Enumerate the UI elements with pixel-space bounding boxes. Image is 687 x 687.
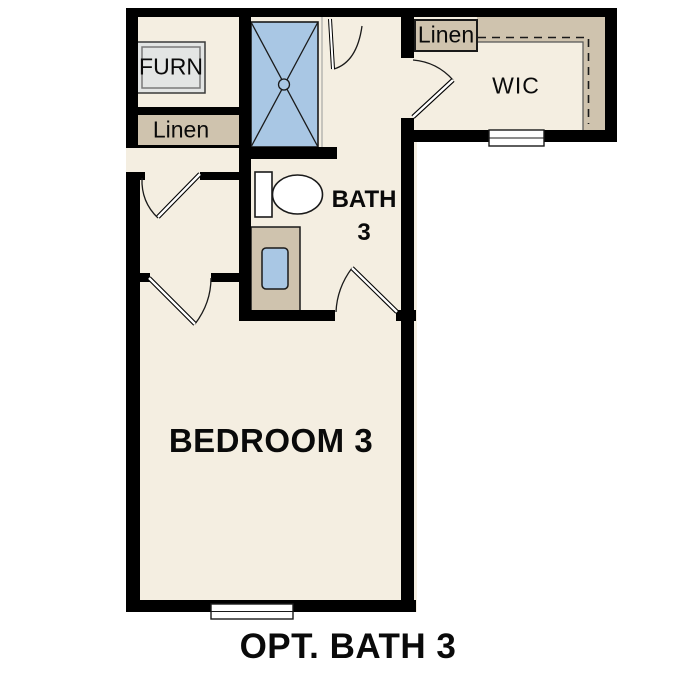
- bath-label-line2: 3: [332, 216, 397, 249]
- toilet-tank: [255, 172, 272, 217]
- toilet: [255, 172, 323, 217]
- floor-area: [126, 8, 617, 612]
- sink: [262, 248, 288, 289]
- furnace-label: FURN: [139, 54, 203, 79]
- floorplan-drawing: [0, 0, 687, 687]
- plan-title: OPT. BATH 3: [240, 628, 457, 667]
- floorplan-opt-bath-3: FURN Linen Linen WIC BATH3 BEDROOM 3 OPT…: [0, 0, 687, 687]
- wic-label: WIC: [492, 73, 540, 98]
- vanity: [251, 227, 300, 312]
- hall-linen-label: Linen: [153, 117, 209, 142]
- toilet-bowl: [273, 175, 323, 214]
- shower: [251, 17, 322, 147]
- shower-drain: [279, 79, 290, 90]
- bath-label: BATH3: [332, 183, 397, 249]
- wic-window: [489, 130, 544, 146]
- bedroom-window: [211, 604, 293, 619]
- bedroom-label: BEDROOM 3: [169, 423, 373, 459]
- wic-linen-label: Linen: [418, 22, 474, 47]
- bath-label-line1: BATH: [332, 183, 397, 216]
